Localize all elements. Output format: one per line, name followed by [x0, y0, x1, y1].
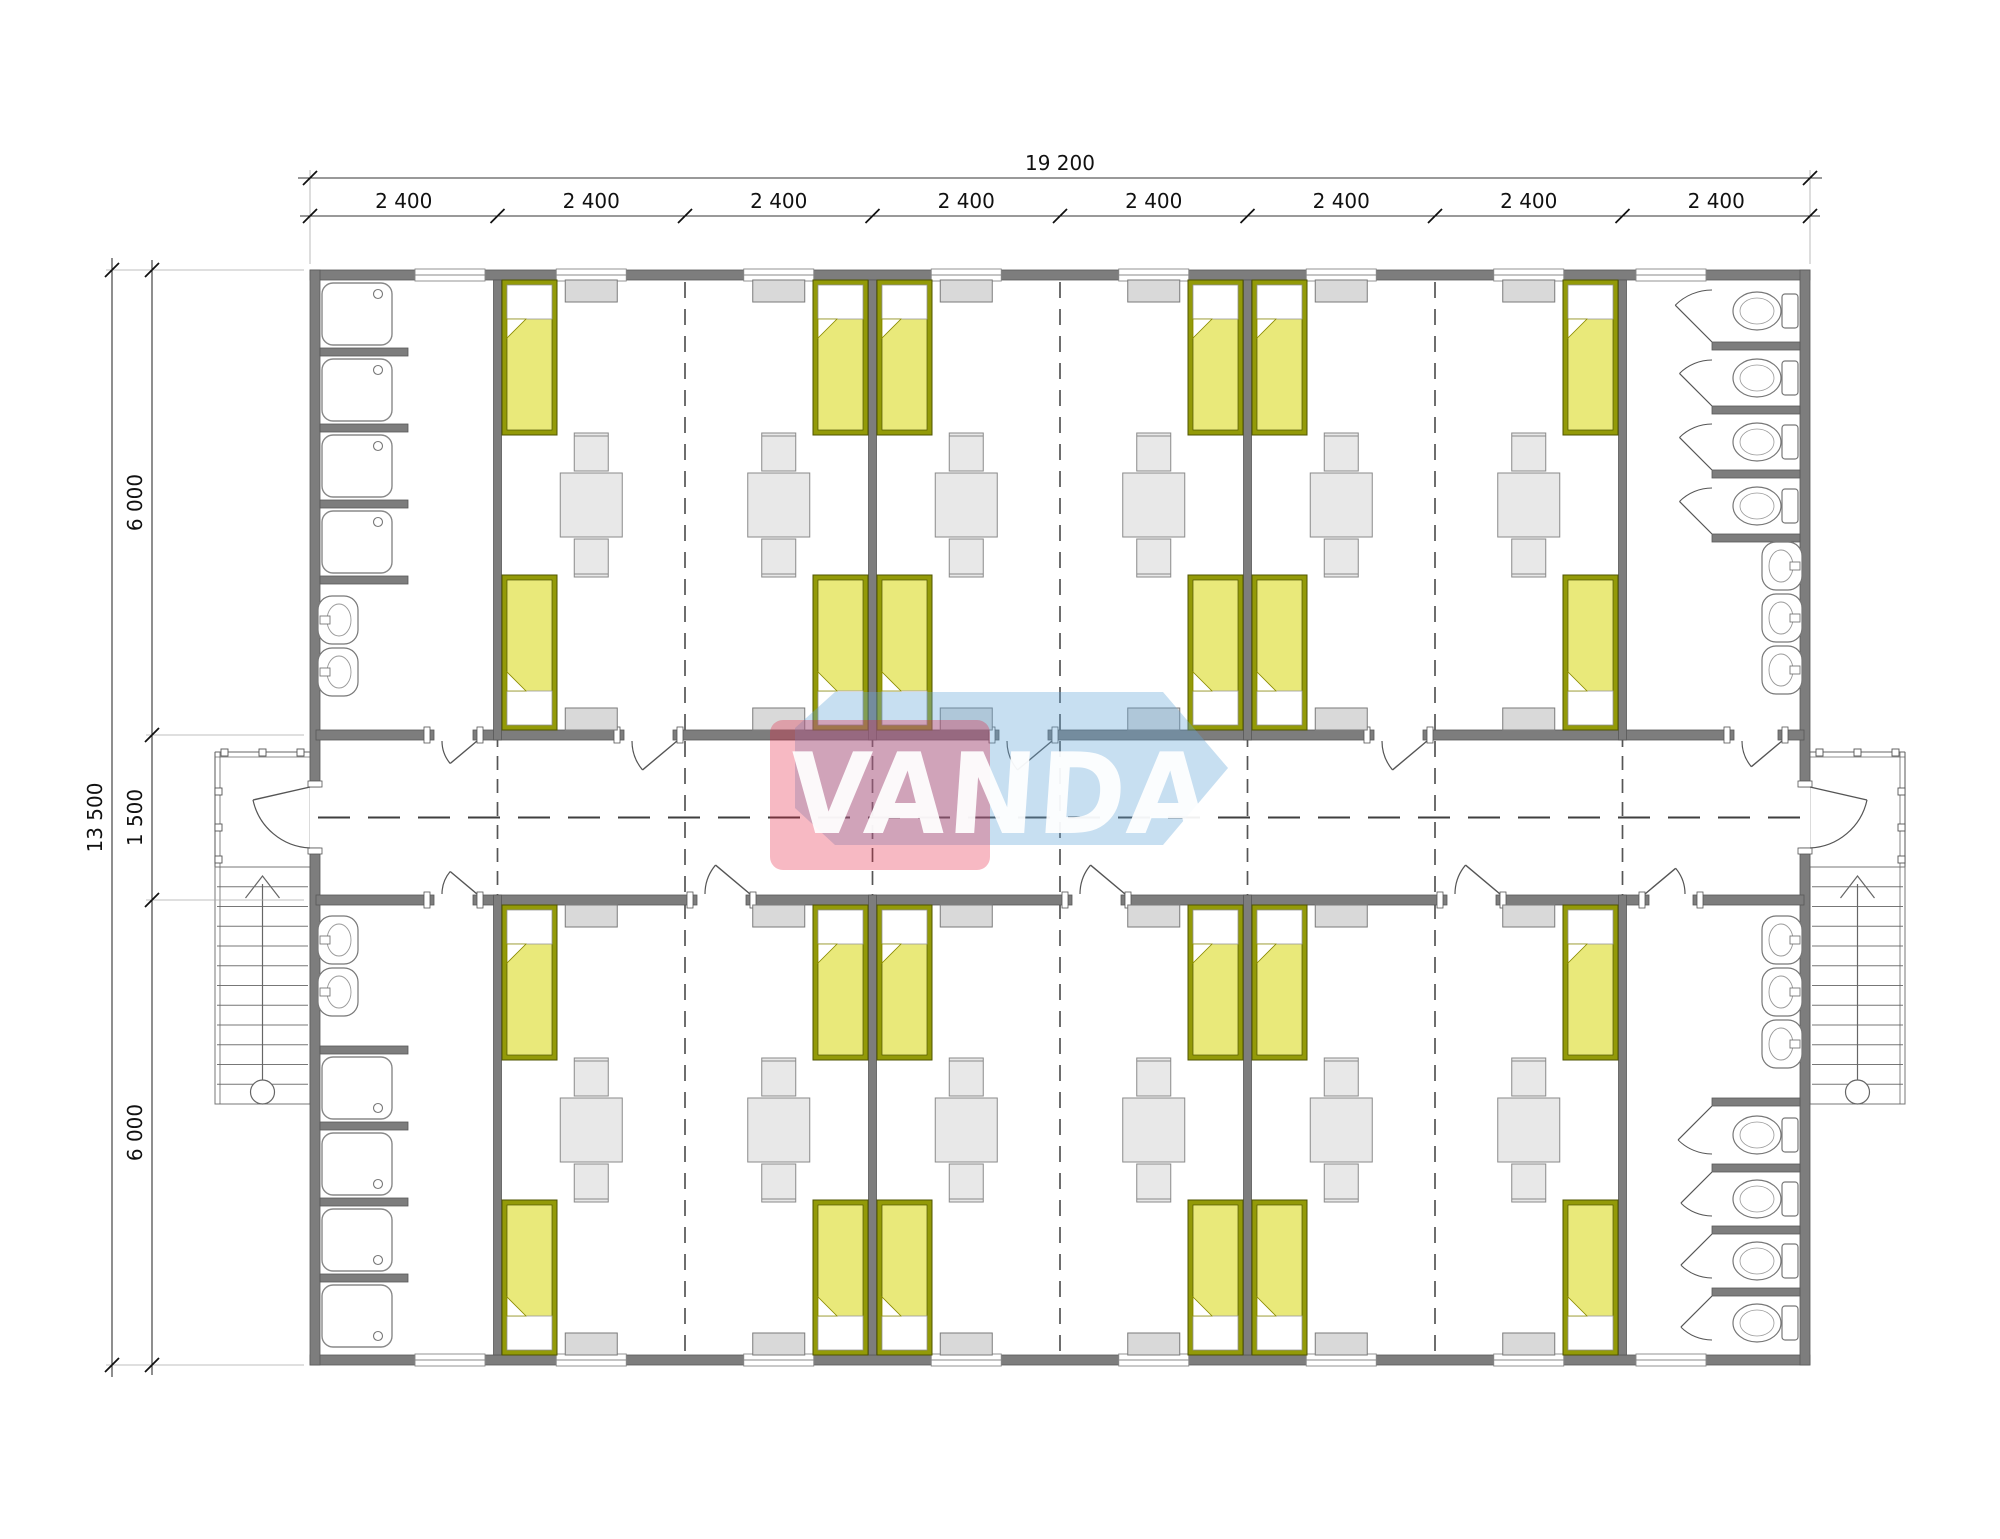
bed	[502, 1200, 557, 1355]
railing-post	[215, 824, 222, 831]
dimension-label: 2 400	[375, 189, 432, 213]
bed	[813, 280, 868, 435]
bed-pillow	[1568, 285, 1613, 319]
table	[1498, 1098, 1560, 1162]
toilet	[1733, 359, 1798, 397]
cabinet	[1503, 905, 1555, 927]
table	[560, 473, 622, 537]
sink-faucet	[1790, 936, 1800, 944]
bed-pillow	[882, 1316, 927, 1350]
table	[1310, 473, 1372, 537]
bed-pillow	[1568, 910, 1613, 944]
chair	[574, 539, 608, 577]
dimension-label: 2 400	[1125, 189, 1182, 213]
table	[935, 473, 997, 537]
table	[1123, 1098, 1185, 1162]
dimension-label: 6 000	[123, 474, 147, 531]
bed	[1563, 280, 1618, 435]
bed-pillow	[818, 1316, 863, 1350]
bed-pillow	[818, 910, 863, 944]
table	[1123, 473, 1185, 537]
door-jamb	[1437, 892, 1443, 908]
cabinet	[1128, 280, 1180, 302]
railing-post	[259, 749, 266, 756]
exterior-wall-top	[310, 270, 1810, 280]
door-jamb	[687, 892, 693, 908]
shower-partition-wall	[320, 1046, 408, 1054]
door-jamb	[677, 727, 683, 743]
shower-partition-wall	[320, 348, 408, 356]
bed	[877, 280, 932, 435]
bed	[1252, 575, 1307, 730]
bed-pillow	[1257, 1316, 1302, 1350]
bed	[813, 1200, 868, 1355]
bed	[1252, 905, 1307, 1060]
landing	[215, 752, 310, 867]
shower	[322, 1285, 392, 1347]
sink-faucet	[320, 668, 330, 676]
railing-post	[221, 749, 228, 756]
sink-faucet	[1790, 666, 1800, 674]
bed-pillow	[1193, 691, 1238, 725]
dimension-label: 2 400	[1313, 189, 1370, 213]
chair	[1324, 433, 1358, 471]
stair-newel-circle	[1846, 1080, 1870, 1104]
toilet	[1733, 1242, 1798, 1280]
corridor-wall	[473, 895, 697, 905]
shower-partition-wall	[320, 1274, 408, 1282]
corridor-wall	[1423, 730, 1734, 740]
chair	[1512, 1164, 1546, 1202]
door-jamb	[1782, 727, 1788, 743]
bed-pillow	[882, 285, 927, 319]
toilet-partition-wall	[1712, 470, 1800, 478]
chair	[1512, 433, 1546, 471]
table	[748, 473, 810, 537]
bed-pillow	[507, 910, 552, 944]
bed	[1188, 575, 1243, 730]
shower-partition-wall	[320, 576, 408, 584]
room-divider-wall	[1244, 280, 1252, 740]
bed-pillow	[818, 285, 863, 319]
bed	[1563, 1200, 1618, 1355]
dimension-label: 19 200	[1025, 151, 1095, 175]
room-divider-wall	[1619, 280, 1627, 740]
bed	[1563, 905, 1618, 1060]
corridor-wall	[1693, 895, 1804, 905]
bed-pillow	[1257, 910, 1302, 944]
chair	[574, 1058, 608, 1096]
cabinet	[565, 1333, 617, 1355]
cabinet	[565, 708, 617, 730]
sink-faucet	[1790, 562, 1800, 570]
corridor-wall	[316, 730, 434, 740]
dimension-label: 1 500	[123, 789, 147, 846]
sink-faucet	[1790, 988, 1800, 996]
dimension-label: 2 400	[1500, 189, 1557, 213]
toilet-partition-wall	[1712, 1098, 1800, 1106]
exterior-wall-right	[1800, 270, 1810, 787]
chair	[762, 539, 796, 577]
door-jamb	[308, 848, 322, 854]
toilet	[1733, 423, 1798, 461]
cabinet	[565, 905, 617, 927]
bed-pillow	[507, 285, 552, 319]
toilet-tank	[1782, 1244, 1798, 1278]
chair	[1512, 539, 1546, 577]
bed-pillow	[1193, 285, 1238, 319]
toilet-tank	[1782, 1182, 1798, 1216]
chair	[1324, 539, 1358, 577]
shower-partition-wall	[320, 500, 408, 508]
door-jamb	[1724, 727, 1730, 743]
door-jamb	[1798, 781, 1812, 787]
shower	[322, 1133, 392, 1195]
bed	[502, 280, 557, 435]
chair	[949, 1058, 983, 1096]
toilet	[1733, 292, 1798, 330]
bed-pillow	[1568, 1316, 1613, 1350]
toilet-tank	[1782, 425, 1798, 459]
door-jamb	[477, 892, 483, 908]
door-jamb	[424, 892, 430, 908]
chair	[762, 433, 796, 471]
door-jamb	[424, 727, 430, 743]
bed	[1188, 280, 1243, 435]
chair	[1137, 433, 1171, 471]
railing-post	[1898, 788, 1905, 795]
cabinet	[940, 905, 992, 927]
railing-post	[215, 788, 222, 795]
stair-newel-circle	[251, 1080, 275, 1104]
room-divider-wall	[1619, 895, 1627, 1355]
shower-partition-wall	[320, 1198, 408, 1206]
dimension-label: 6 000	[123, 1104, 147, 1161]
toilet-tank	[1782, 1306, 1798, 1340]
dimension-label: 2 400	[1688, 189, 1745, 213]
dimension-label: 2 400	[750, 189, 807, 213]
toilet-partition-wall	[1712, 1164, 1800, 1172]
toilet-partition-wall	[1712, 534, 1800, 542]
cabinet	[753, 905, 805, 927]
chair	[762, 1164, 796, 1202]
door-jamb	[1798, 848, 1812, 854]
chair	[1324, 1058, 1358, 1096]
table	[1498, 473, 1560, 537]
shower	[322, 1057, 392, 1119]
shower-partition-wall	[320, 424, 408, 432]
bed-pillow	[1257, 285, 1302, 319]
cabinet	[1503, 280, 1555, 302]
railing-post	[1816, 749, 1823, 756]
door-jamb	[1062, 892, 1068, 908]
railing-post	[1892, 749, 1899, 756]
door-jamb	[1639, 892, 1645, 908]
dimension-label: 13 500	[83, 783, 107, 853]
toilet	[1733, 1180, 1798, 1218]
toilet-tank	[1782, 361, 1798, 395]
door-jamb	[1697, 892, 1703, 908]
room-divider-wall	[494, 280, 502, 740]
door-jamb	[477, 727, 483, 743]
shower	[322, 435, 392, 497]
bed	[877, 905, 932, 1060]
dimension-label: 2 400	[563, 189, 620, 213]
shower	[322, 1209, 392, 1271]
door-jamb	[308, 781, 322, 787]
cabinet	[753, 1333, 805, 1355]
toilet-partition-wall	[1712, 1288, 1800, 1296]
room-divider-wall	[869, 280, 877, 740]
cabinet	[1315, 905, 1367, 927]
table	[1310, 1098, 1372, 1162]
room-divider-wall	[1244, 895, 1252, 1355]
cabinet	[1128, 1333, 1180, 1355]
cabinet	[753, 280, 805, 302]
cabinet	[1503, 1333, 1555, 1355]
bed	[813, 905, 868, 1060]
bed-pillow	[882, 910, 927, 944]
cabinet	[1315, 1333, 1367, 1355]
bed-pillow	[507, 1316, 552, 1350]
chair	[762, 1058, 796, 1096]
shower-partition-wall	[320, 1122, 408, 1130]
chair	[949, 539, 983, 577]
toilet-partition-wall	[1712, 406, 1800, 414]
sink-faucet	[320, 616, 330, 624]
railing-post	[1898, 824, 1905, 831]
landing	[1810, 752, 1905, 867]
railing-post	[297, 749, 304, 756]
bed	[877, 1200, 932, 1355]
watermark-text: VANDA	[777, 722, 1223, 868]
toilet	[1733, 1304, 1798, 1342]
shower	[322, 283, 392, 345]
chair	[574, 1164, 608, 1202]
bed	[1188, 905, 1243, 1060]
table	[748, 1098, 810, 1162]
cabinet	[940, 1333, 992, 1355]
bed-pillow	[507, 691, 552, 725]
chair	[949, 1164, 983, 1202]
toilet	[1733, 487, 1798, 525]
room-divider-wall	[494, 895, 502, 1355]
bed-pillow	[1193, 1316, 1238, 1350]
cabinet	[1315, 708, 1367, 730]
cabinet	[1128, 905, 1180, 927]
sink-faucet	[320, 936, 330, 944]
bed	[1252, 280, 1307, 435]
table	[935, 1098, 997, 1162]
shower	[322, 511, 392, 573]
exterior-wall-bottom	[310, 1355, 1810, 1365]
room-divider-wall	[869, 895, 877, 1355]
sink-faucet	[1790, 1040, 1800, 1048]
door-jamb	[1427, 727, 1433, 743]
chair	[1137, 1058, 1171, 1096]
corridor-wall	[1121, 895, 1447, 905]
floor-plan-canvas: 19 2002 4002 4002 4002 4002 4002 4002 40…	[0, 0, 2000, 1539]
toilet-partition-wall	[1712, 342, 1800, 350]
cabinet	[1503, 708, 1555, 730]
bed-pillow	[1193, 910, 1238, 944]
cabinet	[940, 280, 992, 302]
chair	[1137, 1164, 1171, 1202]
chair	[1137, 539, 1171, 577]
toilet-partition-wall	[1712, 1226, 1800, 1234]
bed	[502, 905, 557, 1060]
railing-post	[1898, 856, 1905, 863]
railing-post	[215, 856, 222, 863]
shower	[322, 359, 392, 421]
bed	[1563, 575, 1618, 730]
chair	[949, 433, 983, 471]
exterior-wall-left	[310, 270, 320, 787]
dimension-label: 2 400	[938, 189, 995, 213]
toilet-tank	[1782, 1118, 1798, 1152]
bed	[1252, 1200, 1307, 1355]
sink-faucet	[320, 988, 330, 996]
chair	[574, 433, 608, 471]
bed	[502, 575, 557, 730]
bed-pillow	[1568, 691, 1613, 725]
corridor-wall	[746, 895, 1072, 905]
chair	[1512, 1058, 1546, 1096]
chair	[1324, 1164, 1358, 1202]
sink-faucet	[1790, 614, 1800, 622]
cabinet	[565, 280, 617, 302]
cabinet	[1315, 280, 1367, 302]
toilet-tank	[1782, 294, 1798, 328]
bed	[1188, 1200, 1243, 1355]
corridor-wall	[316, 895, 434, 905]
bed-pillow	[1257, 691, 1302, 725]
toilet	[1733, 1116, 1798, 1154]
table	[560, 1098, 622, 1162]
toilet-tank	[1782, 489, 1798, 523]
railing-post	[1854, 749, 1861, 756]
